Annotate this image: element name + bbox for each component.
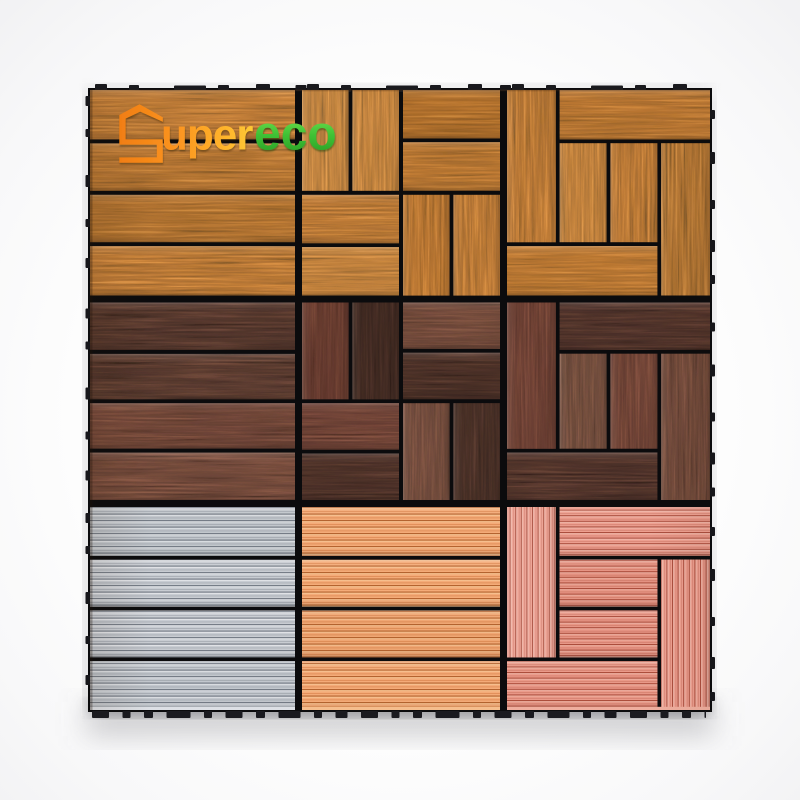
svg-text:uper: uper	[161, 111, 253, 160]
svg-text:eco: eco	[254, 108, 337, 161]
